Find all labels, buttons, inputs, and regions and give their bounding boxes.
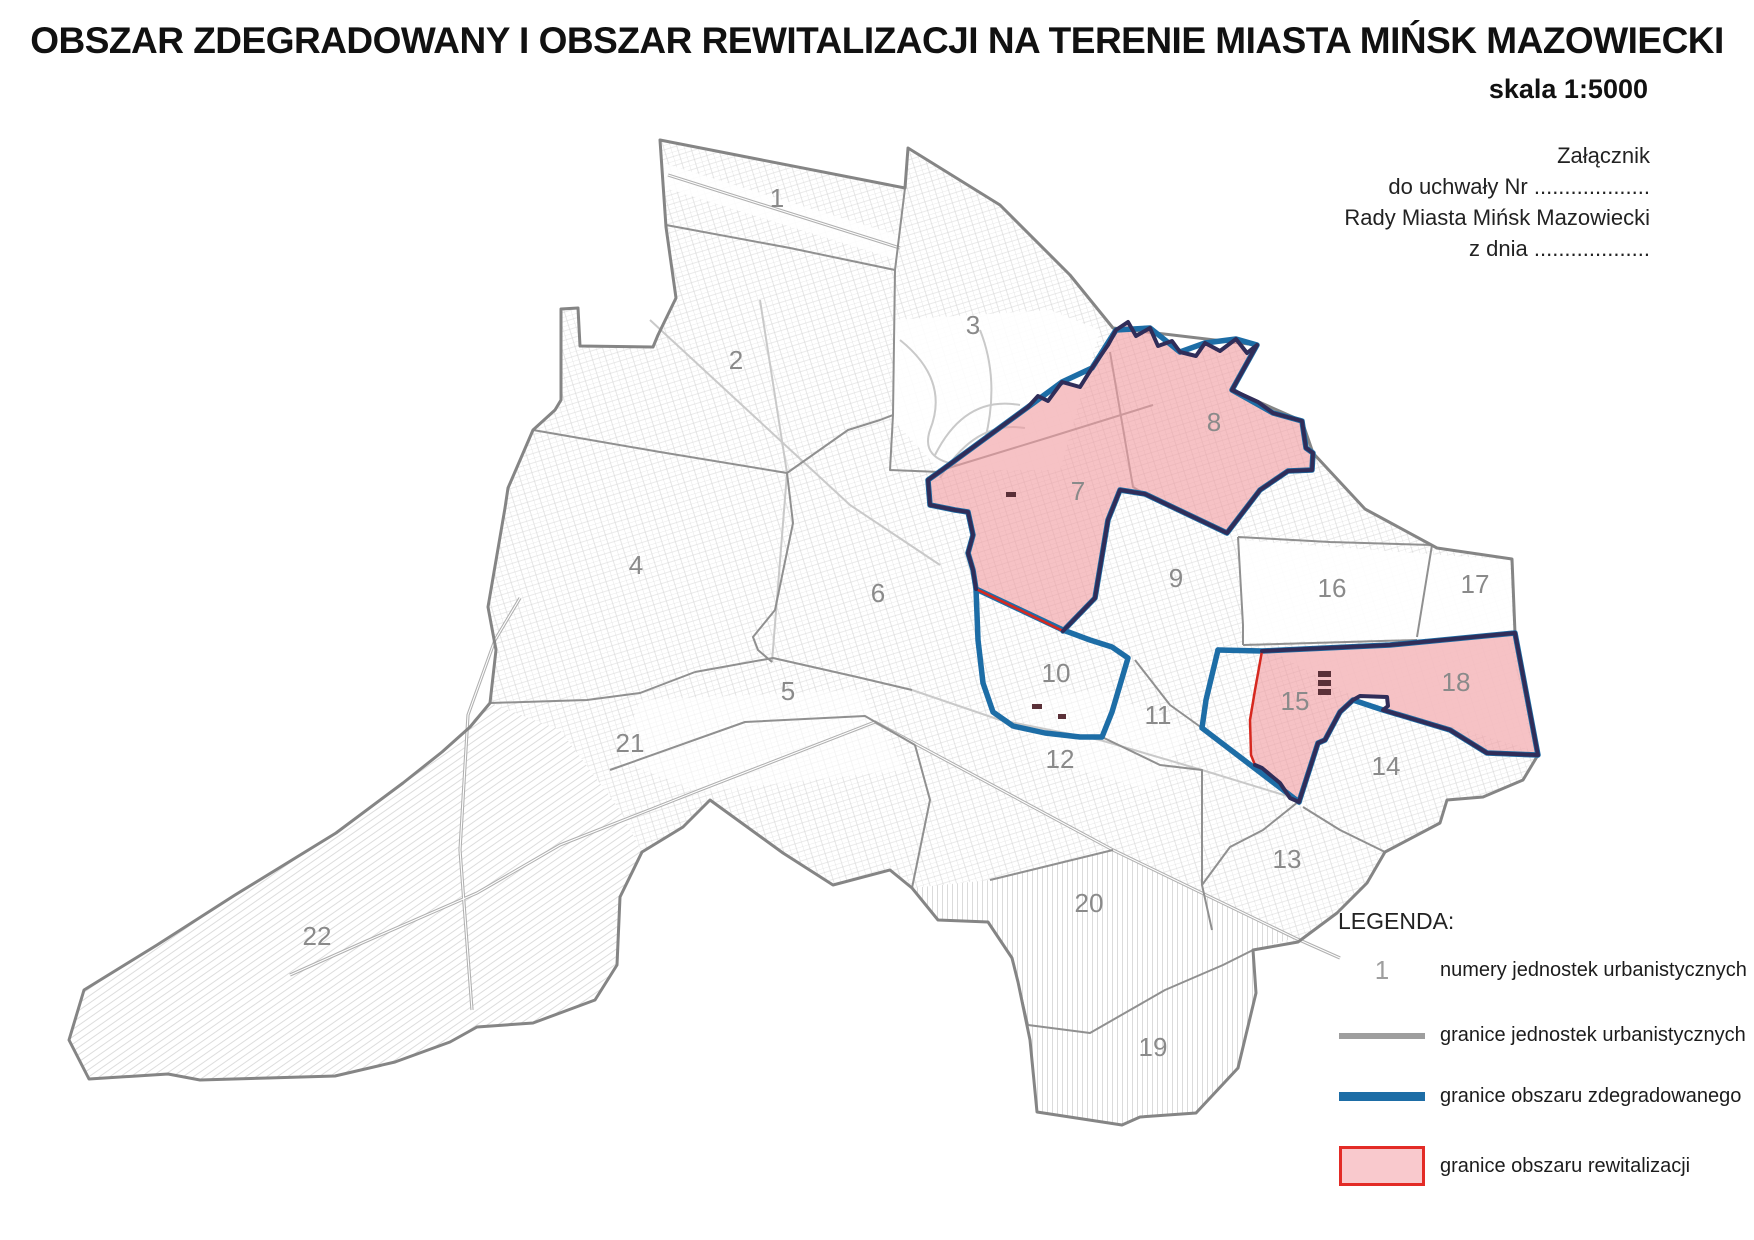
unit-label-22: 22: [303, 921, 332, 951]
legend-item-1: 1numery jednostek urbanistycznych: [1338, 955, 1698, 986]
legend-item-4: granice obszaru rewitalizacji: [1338, 1146, 1698, 1186]
unit-label-2: 2: [729, 345, 743, 375]
unit-label-5: 5: [781, 676, 795, 706]
attachment-line-2: do uchwały Nr ...................: [1344, 171, 1650, 202]
attachment-line-1: Załącznik: [1344, 140, 1650, 171]
unit-label-13: 13: [1273, 844, 1302, 874]
fields-unit22: [69, 703, 642, 1080]
legend-item-label: numery jednostek urbanistycznych: [1440, 959, 1747, 982]
attachment-note: Załącznik do uchwały Nr ................…: [1344, 140, 1650, 264]
legend-item-label: granice jednostek urbanistycznych: [1440, 1024, 1746, 1047]
unit-label-15: 15: [1281, 686, 1310, 716]
unit-label-11: 11: [1145, 700, 1172, 730]
legend-heading: LEGENDA:: [1338, 908, 1698, 935]
unit-label-20: 20: [1075, 888, 1104, 918]
unit-label-14: 14: [1372, 751, 1401, 781]
unit-label-7: 7: [1071, 476, 1085, 506]
unit-label-18: 18: [1442, 667, 1471, 697]
degraded-area-swatch: [1339, 1092, 1425, 1101]
unit-label-8: 8: [1207, 407, 1221, 437]
unit-label-3: 3: [966, 310, 980, 340]
legend-item-2: granice jednostek urbanistycznych: [1338, 1024, 1698, 1047]
page-title: OBSZAR ZDEGRADOWANY I OBSZAR REWITALIZAC…: [0, 20, 1754, 62]
legend-item-label: granice obszaru zdegradowanego: [1440, 1085, 1741, 1108]
unit-number-symbol: 1: [1375, 955, 1389, 986]
legend: LEGENDA: 1numery jednostek urbanistyczny…: [1338, 908, 1698, 1186]
revitalization-area-swatch: [1339, 1146, 1425, 1186]
unit-label-6: 6: [871, 578, 885, 608]
unit-label-21: 21: [616, 728, 645, 758]
legend-item-3: granice obszaru zdegradowanego: [1338, 1085, 1698, 1108]
unit-boundaries-swatch: [1339, 1033, 1425, 1039]
unit-label-1: 1: [770, 183, 784, 213]
unit-label-17: 17: [1461, 569, 1490, 599]
scale-label: skala 1:5000: [1489, 74, 1648, 105]
attachment-line-3: Rady Miasta Mińsk Mazowiecki: [1344, 202, 1650, 233]
unit-label-16: 16: [1318, 573, 1347, 603]
unit-label-19: 19: [1139, 1032, 1168, 1062]
unit-label-10: 10: [1042, 658, 1071, 688]
unit-label-12: 12: [1046, 744, 1075, 774]
legend-item-label: granice obszaru rewitalizacji: [1440, 1155, 1690, 1178]
header: OBSZAR ZDEGRADOWANY I OBSZAR REWITALIZAC…: [0, 20, 1754, 62]
attachment-line-4: z dnia ...................: [1344, 233, 1650, 264]
unit-label-4: 4: [629, 550, 643, 580]
unit-label-9: 9: [1169, 563, 1183, 593]
